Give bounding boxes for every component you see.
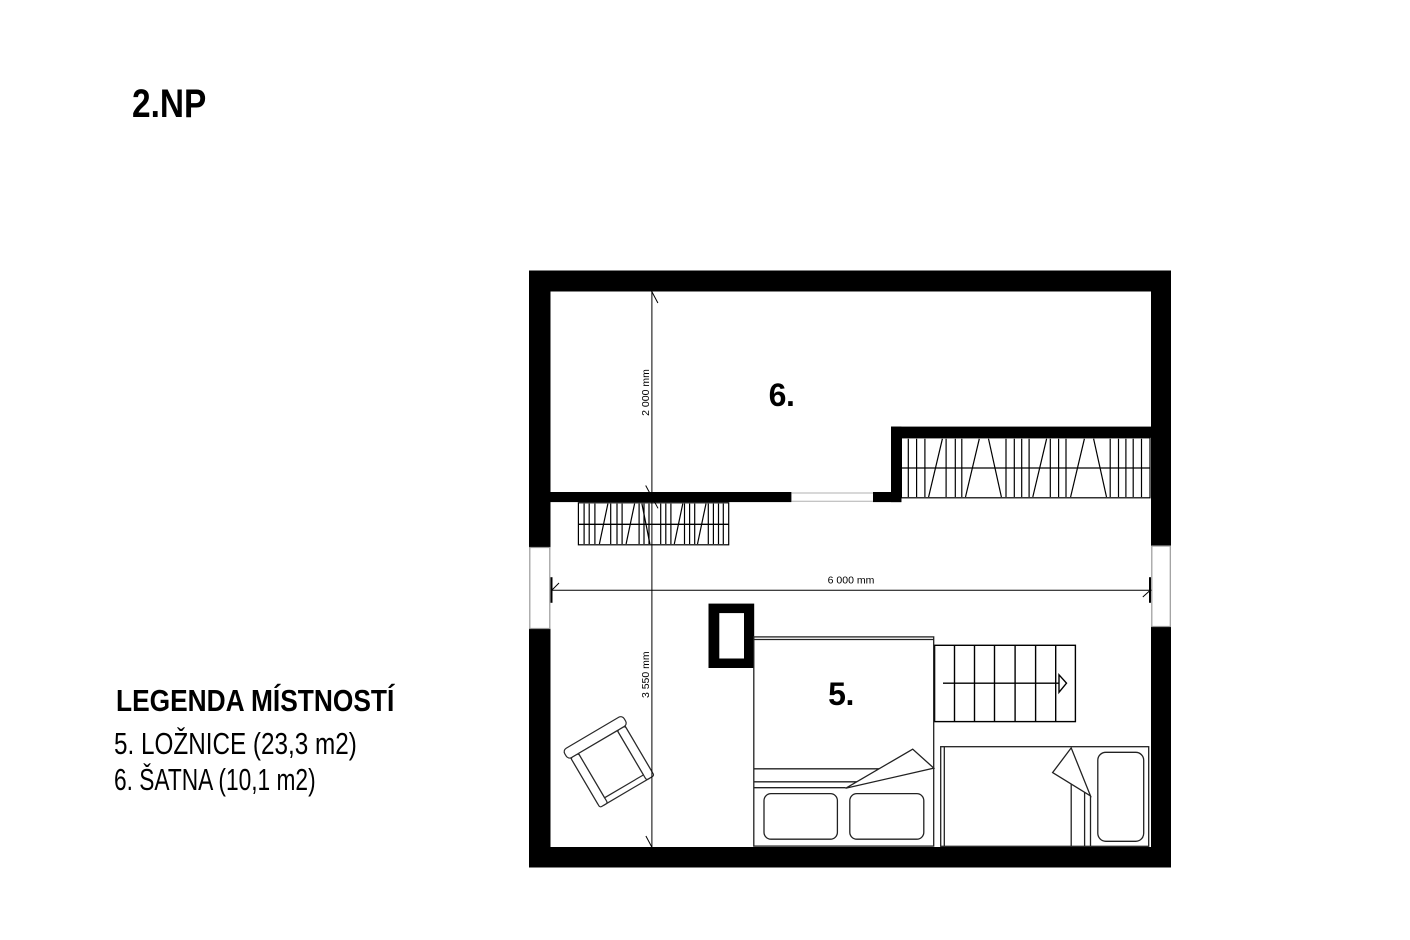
svg-text:5.: 5. <box>828 676 854 712</box>
svg-text:2 000 mm: 2 000 mm <box>640 369 652 416</box>
svg-text:3 550 mm: 3 550 mm <box>640 651 652 698</box>
svg-text:6.: 6. <box>769 377 795 413</box>
svg-text:6 000 mm: 6 000 mm <box>828 575 875 587</box>
